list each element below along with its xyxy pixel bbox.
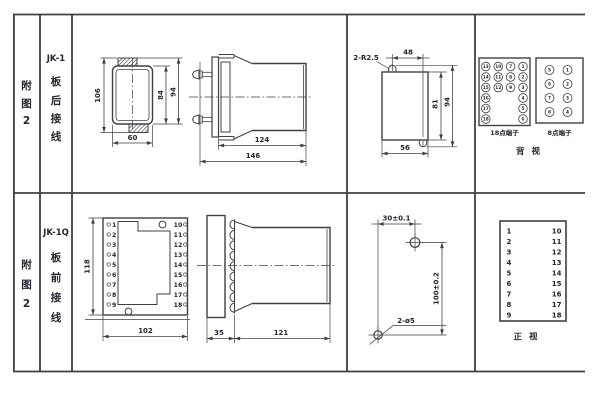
terminal-number: 16	[552, 291, 562, 299]
wiring-char: 板	[51, 75, 62, 88]
figure-char: 2	[23, 298, 30, 310]
terminal-number: 3	[112, 242, 116, 249]
dim-label: 146	[246, 152, 261, 160]
dim-label: 35	[214, 329, 224, 337]
terminal-number: 12	[552, 249, 562, 257]
terminal-number: 7	[548, 96, 551, 102]
terminal-number: 6	[522, 117, 525, 123]
terminal-number: 17	[552, 301, 562, 309]
dim-label: 124	[255, 136, 270, 144]
dim-label: 81	[432, 99, 440, 109]
dim-label: 60	[128, 134, 138, 142]
dim-hole-y-span: 100±0.2	[433, 243, 443, 336]
terminal-number: 1	[566, 68, 569, 74]
terminal-number: 2	[522, 75, 525, 81]
terminal-number: 16	[483, 96, 489, 102]
terminal-number: 5	[548, 68, 551, 74]
front-plate-drawing: 1 2 3 4 5 6 7 8 9 10 11 12 13 14 15 16 1…	[84, 218, 191, 341]
panel-cutout-drawing: 48 2-R2.5 81 94 56	[353, 49, 457, 158]
dim-body-depth: 124	[219, 136, 307, 146]
terminal-number: 15	[174, 272, 183, 279]
terminal-number: 7	[507, 291, 512, 299]
dim-tab-height: 94	[170, 58, 179, 124]
terminal-number: 10	[552, 228, 562, 236]
terminal-number: 9	[507, 312, 512, 320]
terminal-number: 12	[495, 85, 501, 91]
terminal-number: 11	[552, 238, 562, 246]
terminal-number: 4	[522, 96, 525, 102]
terminal-number: 6	[507, 280, 512, 288]
dim-overall-height: 106	[94, 58, 104, 133]
dim-plate-width: 102	[103, 327, 188, 337]
figure-char: 2	[23, 115, 30, 127]
terminal-number: 16	[174, 282, 183, 289]
screw-top	[193, 70, 213, 79]
wiring-char: 接	[51, 112, 62, 125]
terminal-number: 12	[174, 242, 183, 249]
wiring-char: 前	[51, 271, 62, 284]
terminal-number: 15	[483, 85, 489, 91]
dim-case-height: 84	[157, 66, 166, 124]
mounting-tab-top	[118, 58, 137, 66]
terminal-number: 10	[495, 64, 501, 70]
terminal-number: 6	[548, 82, 551, 88]
dim-label: 102	[138, 327, 153, 335]
dim-label: 2-R2.5	[353, 54, 379, 62]
dim-label: 100±0.2	[433, 272, 441, 305]
terminal-number: 4	[112, 252, 117, 259]
terminal-number: 3	[507, 249, 512, 257]
terminal-number: 5	[522, 106, 525, 112]
terminal-number: 2	[507, 238, 512, 246]
terminal-number: 18	[483, 117, 489, 123]
terminal-number: 3	[566, 96, 569, 102]
rear-view-drawing: 106 84 94 60	[94, 58, 183, 147]
terminal-bumps	[230, 220, 235, 312]
terminal-number: 6	[112, 272, 116, 279]
terminal-number: 18	[174, 302, 183, 309]
terminal-number: 8	[112, 292, 116, 299]
terminal-number: 10	[174, 222, 183, 229]
terminal-number: 13	[483, 64, 489, 70]
dim-label: 30±0.1	[382, 215, 410, 223]
dim-cutout-width: 56	[382, 144, 428, 154]
terminal-number: 5	[507, 270, 512, 278]
screw-bottom	[193, 115, 213, 124]
terminal-block-18-label: 18点端子	[490, 128, 519, 137]
dim-label: 56	[400, 144, 410, 152]
drilling-plan-drawing: 30±0.1 100±0.2 2-ø5	[369, 215, 447, 345]
mounting-hole	[159, 221, 166, 228]
side-view-rear-drawing: 124 146	[189, 55, 312, 167]
body-outline	[118, 222, 170, 305]
terminal-number: 2	[112, 232, 116, 239]
radius-note: 2-R2.5	[353, 54, 389, 69]
figure-char: 图	[21, 98, 32, 110]
hole-size-note: 2-ø5	[370, 317, 447, 345]
terminal-number: 1	[112, 222, 116, 229]
terminal-number: 1	[522, 64, 525, 70]
table-numbers-right: 10 11 12 13 14 15 16 17 18	[552, 228, 562, 320]
dim-label: 48	[403, 49, 413, 57]
side-view-front-drawing: 35 121	[197, 216, 334, 344]
terminal-number: 9	[509, 85, 512, 91]
dim-body-depth: 121	[235, 329, 331, 339]
terminal-number: 14	[174, 262, 183, 269]
mounting-hole	[125, 308, 132, 315]
terminal-number: 13	[552, 259, 562, 267]
terminal-number: 11	[495, 75, 501, 81]
terminal-number: 18	[552, 312, 562, 320]
dim-total-depth: 146	[200, 152, 306, 162]
wiring-char: 线	[51, 130, 62, 143]
technical-drawing: 附 图 2 JK-1 板 后 接 线 106 84	[0, 0, 600, 400]
plate-terminals-right: 10 11 12 13 14 15 16 17 18	[174, 222, 187, 309]
dim-label: 2-ø5	[397, 317, 415, 325]
dim-label: 94	[444, 97, 452, 107]
dim-label: 84	[157, 90, 165, 100]
front-view-table: 1 2 3 4 5 6 7 8 9 10 11 12 13 14 15 16 1…	[500, 221, 566, 343]
terminal-block-8	[536, 58, 583, 123]
dim-label: 106	[94, 88, 102, 103]
dim-width: 60	[113, 134, 153, 143]
terminal-number: 14	[552, 270, 562, 278]
terminal-circles-8: 5 6 7 8 1 2 3 4	[545, 66, 572, 117]
terminal-number: 11	[174, 232, 183, 239]
wiring-char: 接	[51, 291, 62, 304]
terminal-number: 14	[483, 75, 489, 81]
terminal-number: 3	[522, 85, 525, 91]
terminal-number: 2	[566, 82, 569, 88]
terminal-number: 1	[507, 228, 512, 236]
terminal-number: 9	[112, 302, 116, 309]
figure-label-top: 附 图 2	[21, 79, 32, 127]
terminal-number: 4	[507, 259, 512, 267]
terminal-number: 8	[509, 75, 512, 81]
wiring-char: 线	[51, 311, 62, 324]
terminal-number: 5	[112, 262, 116, 269]
model-name: JK-1Q	[42, 228, 69, 238]
terminal-number: 7	[509, 64, 512, 70]
figure-char: 图	[21, 279, 32, 291]
terminal-number: 7	[112, 282, 116, 289]
front-plate-side	[207, 216, 225, 318]
cutout-outline	[382, 72, 428, 140]
dim-notch-span: 48	[392, 49, 423, 59]
dim-inner-height: 81	[432, 72, 442, 140]
table-numbers-left: 1 2 3 4 5 6 7 8 9	[507, 228, 512, 320]
dim-outer-height: 94	[444, 65, 453, 147]
wiring-char: 后	[51, 94, 62, 107]
terminal-number: 13	[174, 252, 183, 259]
figure-char: 附	[21, 79, 32, 92]
terminal-number: 17	[483, 106, 489, 112]
terminal-number: 8	[548, 110, 551, 116]
model-label-bottom: JK-1Q 板 前 接 线	[42, 228, 69, 324]
plate-terminals-left: 1 2 3 4 5 6 7 8 9	[107, 222, 117, 309]
wiring-char: 板	[51, 251, 62, 264]
dim-plate-height: 118	[84, 218, 94, 315]
dim-label: 94	[170, 87, 178, 97]
mounting-tab-bottom	[129, 124, 148, 133]
terminal-number: 4	[566, 110, 569, 116]
dim-label: 118	[84, 259, 92, 274]
terminal-block-8-label: 8点端子	[547, 128, 572, 137]
model-label-top: JK-1 板 后 接 线	[46, 54, 66, 143]
dim-front-depth: 35	[207, 329, 235, 339]
back-view-caption: 背 视	[516, 146, 542, 157]
figure-char: 附	[21, 258, 32, 271]
figure-label-bottom: 附 图 2	[21, 258, 32, 310]
front-view-caption: 正 视	[514, 332, 540, 343]
terminal-number: 8	[507, 301, 512, 309]
drawing-sheet: 附 图 2 JK-1 板 后 接 线 106 84	[0, 0, 600, 400]
model-name: JK-1	[46, 54, 66, 64]
dim-hole-x-span: 30±0.1	[378, 215, 415, 225]
dim-label: 121	[274, 329, 289, 337]
terminal-number: 17	[174, 292, 183, 299]
back-view-terminals: 13 14 15 16 17 18 10 11 12 7 8 9 1 2 3 4…	[479, 58, 583, 157]
terminal-number: 15	[552, 280, 562, 288]
terminal-circles-18: 13 14 15 16 17 18 10 11 12 7 8 9 1 2 3 4…	[482, 62, 528, 123]
